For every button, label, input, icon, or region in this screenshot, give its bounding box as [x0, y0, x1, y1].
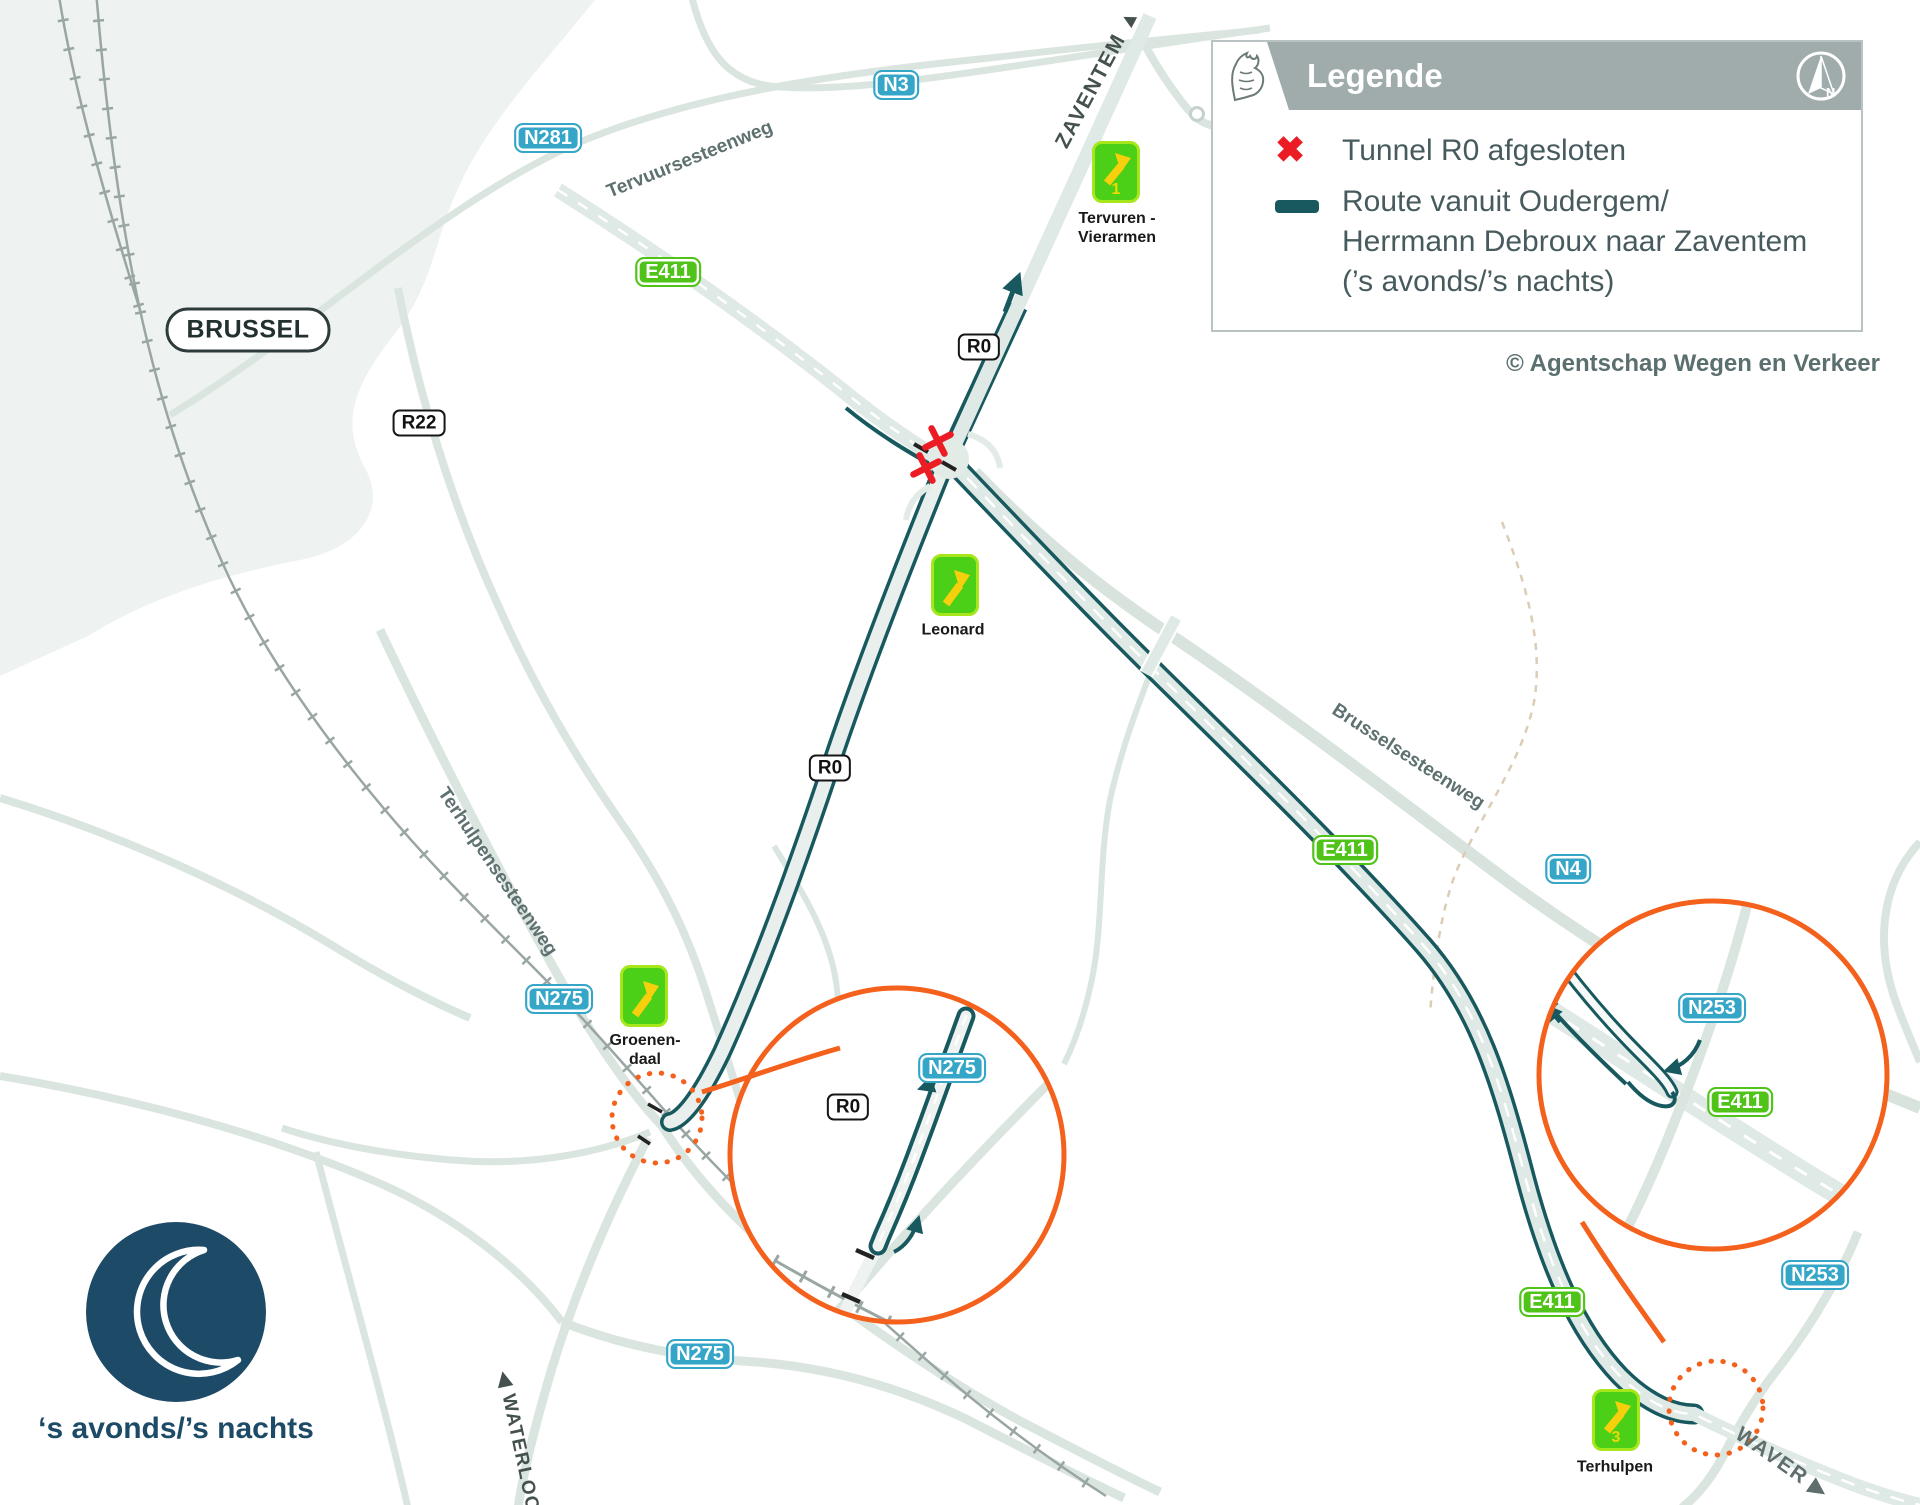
legend-panel: Legende N ✖ Tunnel R0 afgesloten Route v… — [1211, 40, 1863, 332]
exit-label-leonard: Leonard — [921, 622, 984, 641]
road-sign-n275: N275 — [666, 1339, 734, 1369]
inset-terhulpen — [1539, 901, 1900, 1249]
road-map: BRUSSEL ZAVENTEM ▲ ◀ WATERLOO WAVER ▶ Te… — [0, 0, 1920, 1505]
exit-number: 1 — [1095, 181, 1137, 199]
road-sign-r0: R0 — [958, 334, 1000, 361]
road-sign-n281: N281 — [514, 123, 582, 153]
road-sign-e411: E411 — [635, 257, 701, 287]
exit-label-terhulpen: Terhulpen — [1577, 1459, 1653, 1478]
direction-arrow-icon: ◀ — [493, 1370, 517, 1390]
road-sign-e411: E411 — [1707, 1087, 1773, 1117]
road-sign-r0: R0 — [827, 1094, 869, 1121]
road-sign-r22: R22 — [393, 410, 446, 437]
legend-item-tunnel-closed: Tunnel R0 afgesloten — [1342, 134, 1626, 168]
legend-header: Legende N — [1213, 42, 1861, 110]
road-sign-n4: N4 — [1545, 854, 1591, 884]
city-label-brussel: BRUSSEL — [166, 308, 331, 353]
north-compass-icon: N — [1795, 50, 1847, 102]
road-sign-n275: N275 — [525, 984, 593, 1014]
road-sign-e411: E411 — [1312, 835, 1378, 865]
svg-text:N: N — [1826, 85, 1835, 100]
exit-label-groenendaal: Groenen- daal — [609, 1032, 680, 1070]
route-line-icon — [1275, 200, 1319, 213]
road-sign-e411: E411 — [1519, 1287, 1585, 1317]
exit-sign-leonard — [931, 554, 979, 616]
road-sign-n253: N253 — [1781, 1260, 1849, 1290]
exit-arrow-icon — [934, 562, 976, 610]
highway-e411-nw — [558, 190, 952, 472]
inset-groenendaal — [730, 988, 1072, 1390]
exit-sign-terhulpen: 3 — [1592, 1389, 1640, 1451]
legend-item-route: Route vanuit Oudergem/ Herrmann Debroux … — [1342, 182, 1807, 302]
exit-arrow-icon — [623, 973, 665, 1021]
road-sign-n275: N275 — [918, 1053, 986, 1083]
roundabout — [1191, 108, 1204, 121]
exit-sign-tervuren-vierarmen: 1 — [1092, 141, 1140, 203]
night-badge — [86, 1222, 266, 1402]
moon-icon — [86, 1222, 266, 1402]
road-sign-n253: N253 — [1678, 993, 1746, 1023]
exit-number: 3 — [1595, 1429, 1637, 1447]
flanders-lion-icon — [1223, 48, 1267, 104]
copyright-credit: © Agentschap Wegen en Verkeer — [1400, 350, 1880, 378]
exit-label-tervuren-vierarmen: Tervuren - Vierarmen — [1078, 210, 1156, 248]
closed-x-icon: ✖ — [1275, 132, 1305, 168]
legend-title: Legende — [1307, 42, 1443, 110]
exit-sign-groenendaal — [620, 965, 668, 1027]
road-sign-n3: N3 — [873, 70, 919, 100]
night-badge-label: ‘s avonds/’s nachts — [16, 1412, 336, 1446]
road-sign-r0: R0 — [809, 755, 851, 782]
